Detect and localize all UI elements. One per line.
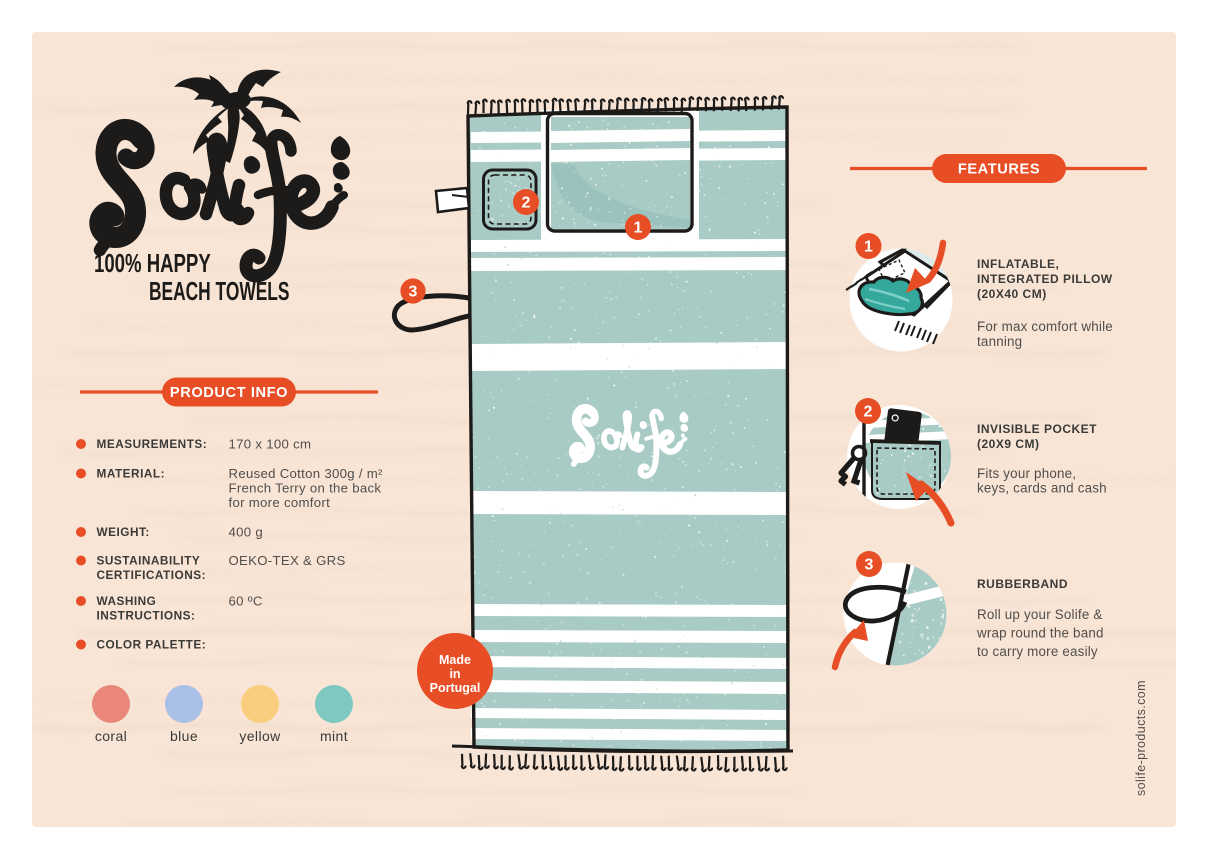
svg-text:2: 2: [864, 404, 873, 421]
svg-text:tanning: tanning: [977, 334, 1022, 349]
svg-text:INSTRUCTIONS:: INSTRUCTIONS:: [97, 609, 196, 623]
svg-text:Portugal: Portugal: [430, 681, 481, 695]
svg-text:MEASUREMENTS:: MEASUREMENTS:: [97, 437, 208, 451]
svg-text:for more comfort: for more comfort: [229, 495, 331, 510]
svg-text:yellow: yellow: [239, 728, 281, 744]
svg-text:100% HAPPY: 100% HAPPY: [94, 249, 211, 278]
svg-text:3: 3: [865, 557, 874, 574]
svg-text:Roll up your Solife &: Roll up your Solife &: [977, 607, 1103, 622]
svg-text:60 ºC: 60 ºC: [229, 594, 263, 609]
svg-text:PRODUCT INFO: PRODUCT INFO: [170, 385, 288, 401]
svg-text:blue: blue: [170, 728, 198, 744]
svg-text:2: 2: [522, 195, 531, 212]
svg-text:SUSTAINABILITY: SUSTAINABILITY: [97, 554, 201, 568]
svg-text:INVISIBLE POCKET: INVISIBLE POCKET: [977, 422, 1097, 436]
svg-text:1: 1: [634, 220, 643, 237]
svg-text:Fits your phone,: Fits your phone,: [977, 466, 1076, 481]
svg-text:(20X9 CM): (20X9 CM): [977, 437, 1040, 451]
svg-text:WEIGHT:: WEIGHT:: [97, 525, 150, 539]
svg-text:keys, cards and cash: keys, cards and cash: [977, 481, 1107, 496]
svg-text:INTEGRATED PILLOW: INTEGRATED PILLOW: [977, 272, 1113, 286]
svg-text:INFLATABLE,: INFLATABLE,: [977, 257, 1059, 271]
svg-text:wrap round the band: wrap round the band: [976, 626, 1104, 641]
svg-text:to carry more easily: to carry more easily: [977, 644, 1098, 659]
svg-text:3: 3: [409, 284, 418, 301]
svg-text:RUBBERBAND: RUBBERBAND: [977, 577, 1068, 591]
svg-text:OEKO-TEX & GRS: OEKO-TEX & GRS: [229, 553, 346, 568]
svg-text:French Terry on the back: French Terry on the back: [229, 481, 382, 496]
svg-text:in: in: [449, 667, 460, 681]
svg-text:COLOR PALETTE:: COLOR PALETTE:: [97, 638, 207, 652]
svg-text:WASHING: WASHING: [97, 594, 157, 608]
svg-text:CERTIFICATIONS:: CERTIFICATIONS:: [97, 568, 207, 582]
svg-text:solife-products.com: solife-products.com: [1134, 680, 1148, 796]
svg-text:For max comfort while: For max comfort while: [977, 319, 1113, 334]
svg-text:BEACH TOWELS: BEACH TOWELS: [149, 276, 289, 305]
svg-text:mint: mint: [320, 728, 348, 744]
svg-text:(20X40 CM): (20X40 CM): [977, 287, 1047, 301]
svg-text:coral: coral: [95, 728, 127, 744]
svg-text:170 x 100 cm: 170 x 100 cm: [229, 437, 312, 452]
svg-text:Made: Made: [439, 653, 471, 667]
svg-text:1: 1: [864, 239, 873, 256]
svg-text:FEATURES: FEATURES: [958, 162, 1040, 178]
svg-text:400 g: 400 g: [229, 525, 264, 540]
svg-text:MATERIAL:: MATERIAL:: [97, 467, 166, 481]
svg-text:Reused Cotton 300g / m²: Reused Cotton 300g / m²: [229, 466, 384, 481]
